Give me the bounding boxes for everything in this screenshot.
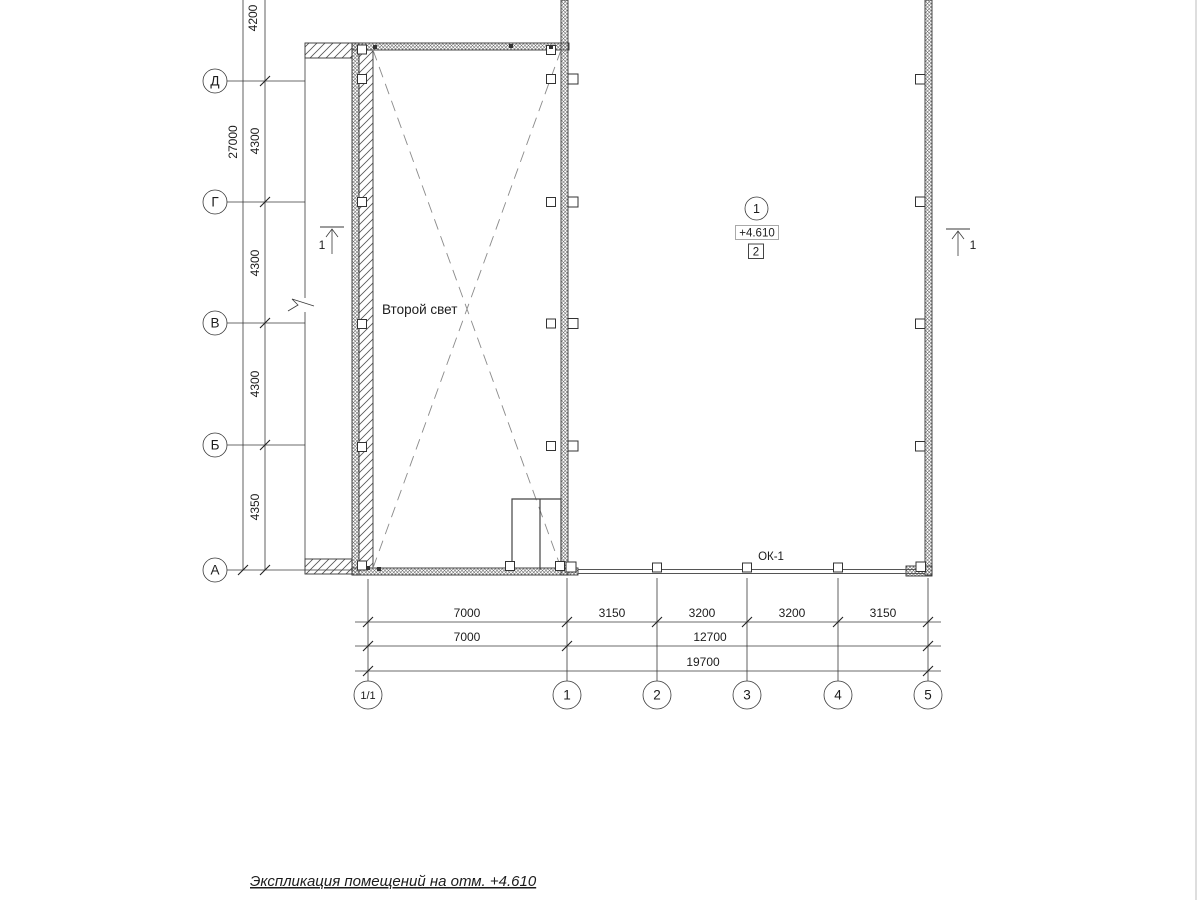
wall-top: [352, 43, 569, 50]
bottom-dimensions: 7000 3150 3200 3200 3150 7000 12700 1970…: [354, 578, 942, 709]
dim-left-total: 27000: [226, 125, 240, 159]
dim-left-segment: 4350: [248, 493, 262, 520]
window-tag: ОК-1: [758, 551, 784, 563]
dim-left-segment: 4300: [248, 127, 262, 154]
break-symbol: [288, 299, 314, 311]
dim-bottom: 3150: [870, 606, 897, 620]
section-mark-right: 1: [946, 229, 977, 256]
wall-bottom: [352, 568, 578, 575]
wall-left-outer: [352, 43, 359, 575]
space-number: 1: [753, 202, 760, 216]
door-opening: [512, 499, 561, 570]
wall-middle: [561, 0, 568, 575]
axis-col-label: 1: [563, 688, 571, 703]
room-type-number: 2: [753, 247, 759, 259]
floor-plan-drawing: Д Г В Б А 4200 4300 4300 4300 4350 27000…: [0, 0, 1200, 900]
wall-right: [925, 0, 932, 575]
dim-bottom: 7000: [454, 606, 481, 620]
dim-bottom: 7000: [454, 630, 481, 644]
dim-bottom: 12700: [693, 630, 727, 644]
dim-left-segment: 4200: [246, 4, 260, 31]
wall-stub-top: [305, 43, 352, 58]
axis-row-label: А: [210, 563, 219, 578]
level-mark: +4.610: [739, 228, 775, 240]
walls: [288, 0, 932, 576]
section-mark-left: 1: [319, 227, 344, 254]
axis-col-label: 5: [924, 688, 932, 703]
axis-col-label: 2: [653, 688, 661, 703]
axis-col-label: 1/1: [360, 690, 375, 702]
section-label: 1: [970, 238, 977, 252]
dim-left-segment: 4300: [248, 370, 262, 397]
axis-col-label: 4: [834, 688, 842, 703]
axis-row-label: В: [210, 316, 219, 331]
dim-left-segment: 4300: [248, 249, 262, 276]
dim-bottom: 3200: [779, 606, 806, 620]
left-dimensions: 4200 4300 4300 4300 4350 27000: [226, 0, 270, 575]
dim-bottom: 3150: [599, 606, 626, 620]
space-tag: 1 +4.610 2: [736, 197, 779, 259]
axis-row-label: Б: [211, 438, 220, 453]
axis-row-label: Д: [210, 74, 219, 89]
axis-row-label: Г: [211, 195, 219, 210]
room-label: Второй свет: [382, 302, 457, 317]
section-label: 1: [319, 238, 326, 252]
wall-left-inner: [359, 50, 373, 568]
drawing-title: Экспликация помещений на отм. +4.610: [250, 873, 537, 890]
wall-stub-bottom: [305, 559, 352, 574]
dim-bottom: 19700: [686, 655, 720, 669]
dim-bottom: 3200: [689, 606, 716, 620]
axis-col-label: 3: [743, 688, 751, 703]
